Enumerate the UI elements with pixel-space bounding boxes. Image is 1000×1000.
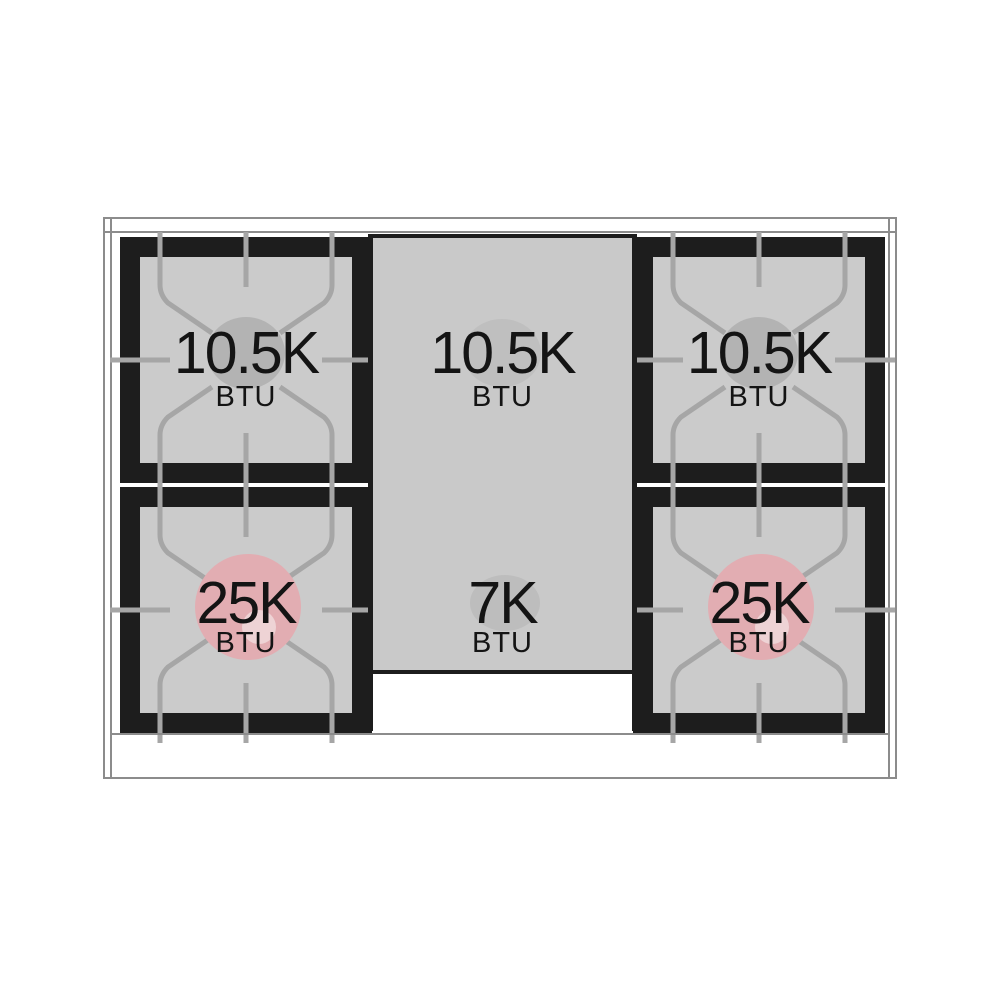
cooktop-diagram: 10.5K BTU 10.5K BTU [0, 0, 1000, 1000]
burner-btu-value: 10.5K [120, 325, 372, 381]
burner-top-right: 10.5K BTU [633, 237, 885, 483]
center-griddle-panel: 10.5K BTU 7K BTU [368, 234, 637, 731]
burner-btu-value: 10.5K [633, 325, 885, 381]
burner-btu-unit: BTU [368, 382, 637, 412]
burner-bottom-left: 25K BTU [120, 487, 372, 733]
griddle-tray [373, 674, 632, 731]
burner-btu-value: 25K [633, 575, 885, 631]
burner-btu-unit: BTU [368, 628, 637, 658]
burner-btu-unit: BTU [633, 628, 885, 658]
burner-btu-unit: BTU [120, 628, 372, 658]
front-trim-line [110, 733, 890, 735]
burner-btu-value: 7K [368, 575, 637, 631]
burner-top-left: 10.5K BTU [120, 237, 372, 483]
burner-btu-unit: BTU [633, 382, 885, 412]
burner-btu-value: 10.5K [368, 325, 637, 381]
burner-btu-unit: BTU [120, 382, 372, 412]
burner-bottom-right: 25K BTU [633, 487, 885, 733]
burner-btu-value: 25K [120, 575, 372, 631]
